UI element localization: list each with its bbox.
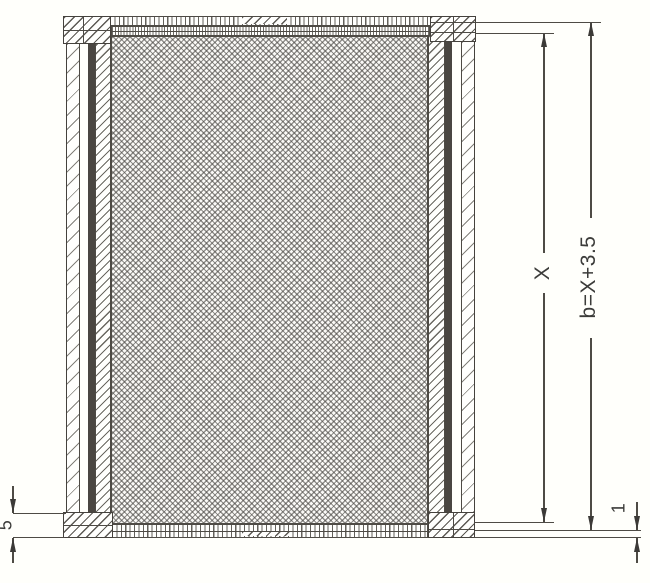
ear-top-left	[63, 16, 111, 44]
dimension-label-1: 1	[609, 503, 630, 514]
dimension-line-x-upper	[543, 33, 544, 253]
dim-arrow-b-bottom	[588, 516, 594, 530]
ear-top-right-split	[453, 17, 454, 41]
top-inner-strip	[111, 26, 430, 36]
side-bar-right-outer	[461, 42, 475, 512]
top-bar-hatch-segment	[242, 17, 287, 24]
dim-arrow-5-top	[10, 499, 16, 513]
side-bar-left-inner	[95, 36, 111, 513]
ear-bottom-left-joint	[64, 525, 112, 526]
ear-bottom-right-split	[453, 513, 454, 537]
dimension-label-x: X	[531, 266, 555, 281]
ear-top-left-split	[83, 17, 84, 43]
extension-line-b-top	[475, 22, 601, 23]
dim-arrow-x-top	[541, 33, 547, 47]
dimension-label-5: 5	[0, 520, 17, 531]
side-bar-right-inner	[428, 36, 445, 512]
bottom-bar-hatch-segment	[242, 532, 292, 537]
bottom-bar-strip	[111, 524, 428, 538]
dim-arrow-1-top	[634, 516, 640, 530]
dim-arrow-5-bottom	[10, 538, 16, 552]
wire-groove-left	[88, 44, 95, 513]
frame-section-diagram: X b=X+3.5 5 1	[0, 0, 650, 583]
ear-top-right	[430, 16, 476, 42]
dim-arrow-b-top	[588, 22, 594, 36]
ear-top-left-joint	[64, 30, 110, 31]
ear-bottom-left	[63, 512, 113, 538]
top-bar-strip	[65, 16, 476, 26]
dimension-line-b-lower	[590, 338, 591, 530]
dimension-label-b: b=X+3.5	[577, 236, 601, 319]
top-inner-strip-midline	[112, 31, 429, 32]
comb-foundation-mesh	[111, 36, 428, 524]
extension-line-b-bottom	[475, 530, 641, 531]
dim-arrow-x-bottom	[541, 508, 547, 522]
wire-groove-right	[445, 42, 452, 512]
extension-line-5-bottom	[13, 537, 65, 538]
extension-line-1-bottom	[474, 537, 641, 538]
side-bar-left-outer	[66, 44, 80, 513]
dimension-line-x-lower	[543, 293, 544, 522]
dim-arrow-1-bottom	[634, 538, 640, 552]
ear-bottom-right	[428, 512, 475, 538]
extension-line-5-top	[13, 513, 66, 514]
dimension-line-b-upper	[590, 22, 591, 218]
ear-bottom-right-joint	[429, 529, 474, 530]
